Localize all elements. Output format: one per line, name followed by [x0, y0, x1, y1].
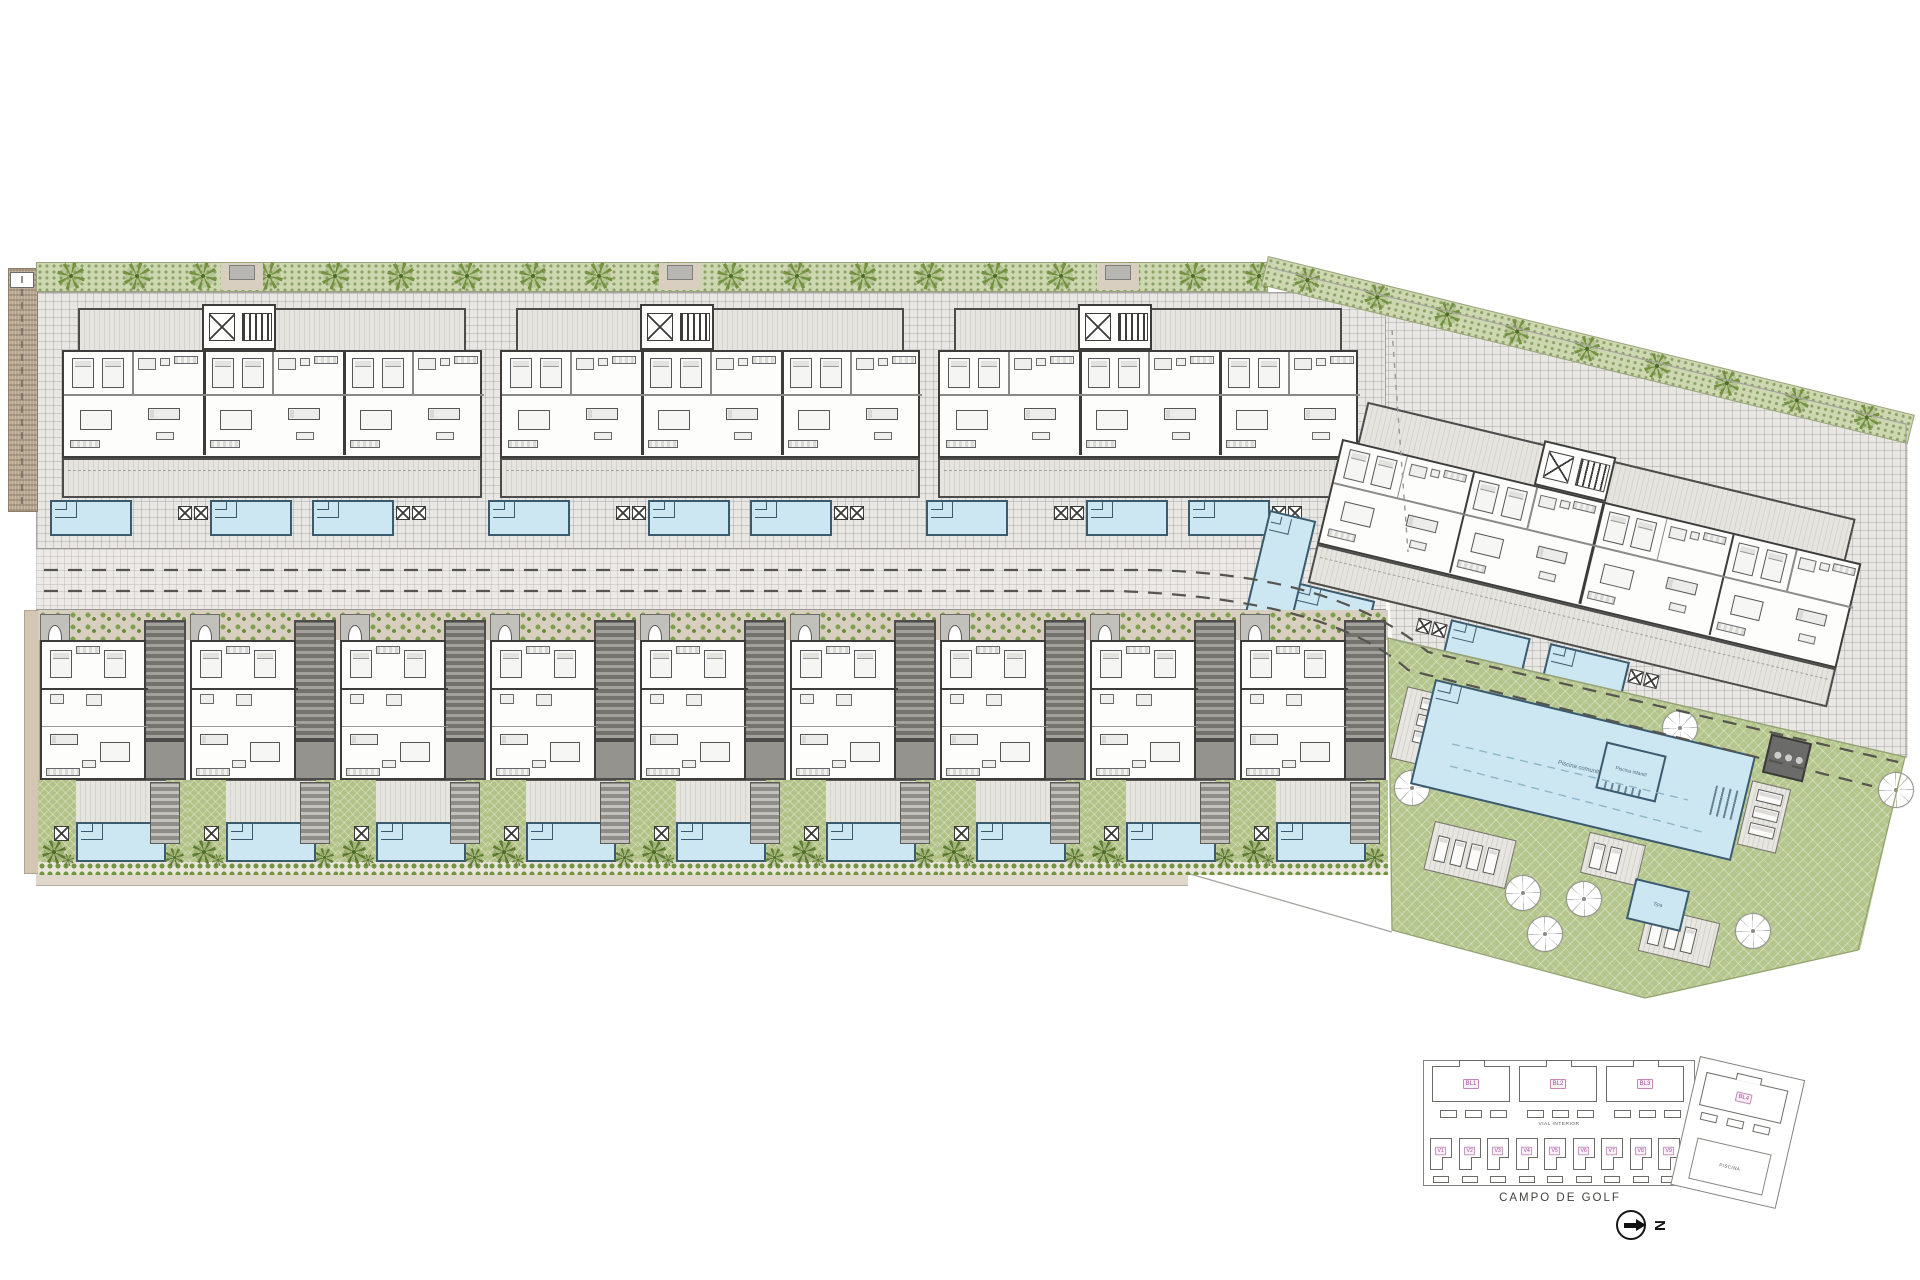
key-plan-pool: [1576, 1176, 1592, 1183]
villa-label: V5: [1549, 1147, 1560, 1156]
villa-label: V4: [1521, 1147, 1532, 1156]
villa-label: V1: [1435, 1147, 1446, 1156]
key-plan-pool: [1633, 1176, 1649, 1183]
key-plan-pool: [1462, 1176, 1478, 1183]
key-plan-villa-V6: V6: [1573, 1138, 1595, 1170]
key-plan-pool: [1604, 1176, 1620, 1183]
key-plan-villa-V4: V4: [1516, 1138, 1538, 1170]
key-plan-pool: [1752, 1124, 1770, 1136]
spa-pool: Spa: [1626, 878, 1690, 932]
villa-label: V7: [1606, 1147, 1617, 1156]
site-plan-canvas: Piscina comunitaria Piscina infantil Spa…: [0, 0, 1920, 1280]
key-plan-villa-V1: V1: [1430, 1138, 1452, 1170]
north-arrow-icon: N: [1616, 1210, 1706, 1244]
golf-course-label: CAMPO DE GOLF: [1460, 1192, 1660, 1204]
key-plan-villa-V8: V8: [1630, 1138, 1652, 1170]
north-letter: N: [1651, 1220, 1668, 1231]
key-plan-villa-V3: V3: [1487, 1138, 1509, 1170]
spa-pool-label: Spa: [1628, 880, 1687, 929]
key-plan: BL1BL2BL3 VIAL INTERIOR V1V2V3V4V5V6V7V8…: [1420, 1052, 1850, 1272]
key-plan-villa-V7: V7: [1601, 1138, 1623, 1170]
villa-label: V8: [1635, 1147, 1646, 1156]
communal-main-pool: Piscina comunitaria: [1410, 679, 1756, 861]
villa-label: V6: [1578, 1147, 1589, 1156]
villa-label: V2: [1464, 1147, 1475, 1156]
key-plan-pool: [1700, 1112, 1718, 1124]
key-plan-villa-V2: V2: [1459, 1138, 1481, 1170]
pool-steps: [1709, 785, 1741, 820]
villa-label: V3: [1492, 1147, 1503, 1156]
villa-label: V9: [1663, 1147, 1674, 1156]
piscina-label: PISCINA: [1719, 1162, 1741, 1172]
key-plan-pool: [1490, 1176, 1506, 1183]
key-plan-pool: [1519, 1176, 1535, 1183]
key-plan-pool: [1726, 1118, 1744, 1130]
north-arrow-bar: [1624, 1223, 1636, 1228]
key-plan-villa-V5: V5: [1544, 1138, 1566, 1170]
key-plan-pool: [1547, 1176, 1563, 1183]
communal-main-pool-label: Piscina comunitaria: [1412, 681, 1753, 858]
north-arrow-head: [1636, 1219, 1646, 1231]
key-plan-pool: [1433, 1176, 1449, 1183]
